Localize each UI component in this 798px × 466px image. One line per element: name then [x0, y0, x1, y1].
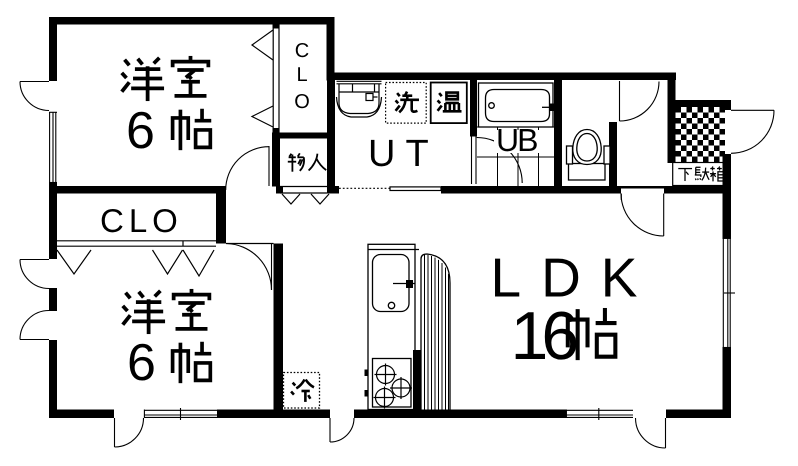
svg-text:C: C	[295, 40, 309, 62]
svg-text:UB: UB	[496, 122, 537, 158]
svg-text:CLO: CLO	[100, 202, 183, 239]
svg-text:UT: UT	[368, 133, 439, 175]
svg-text:O: O	[294, 91, 310, 113]
svg-text:6: 6	[127, 334, 156, 392]
svg-text:6: 6	[126, 102, 155, 160]
svg-text:L: L	[296, 64, 307, 86]
